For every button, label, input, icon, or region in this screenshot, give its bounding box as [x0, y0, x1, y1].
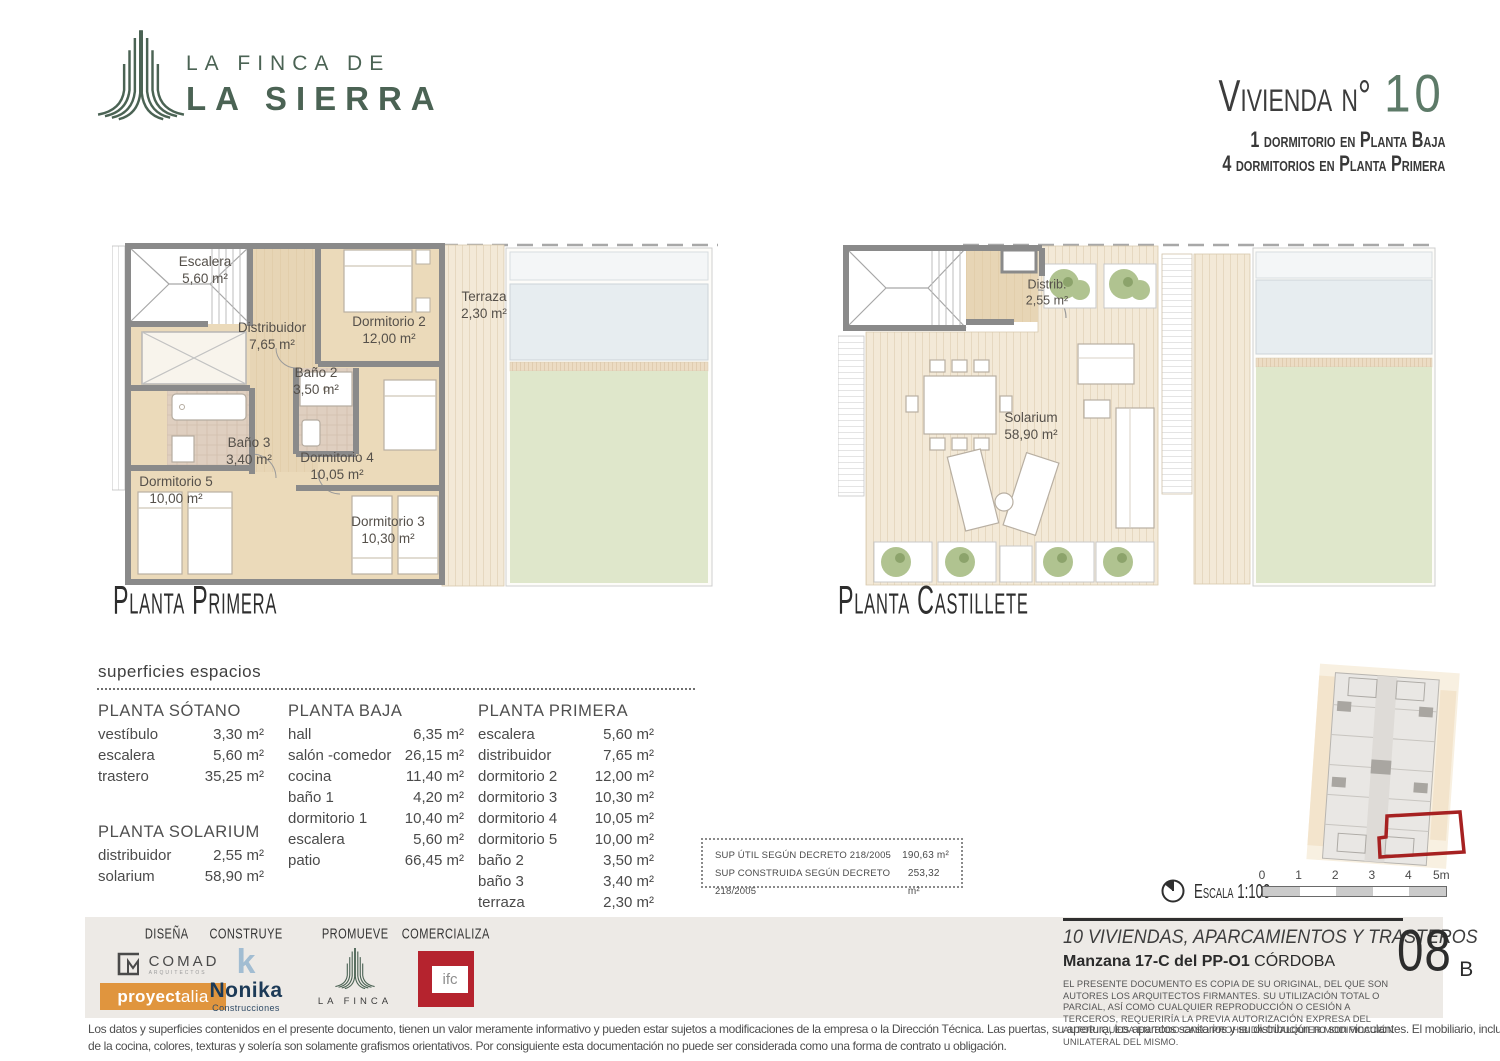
room-label-dormitorio-4: Dormitorio 410,05 m²	[300, 450, 374, 484]
disclaimer-line-2: de la cocina, colores, texturas y solerí…	[88, 1039, 1007, 1053]
scale-ticks: 0 1 2 3 4 5m	[1262, 868, 1445, 882]
surfaces-title: PLANTA PRIMERA	[478, 700, 654, 722]
surface-row: baño 14,20 m²	[288, 787, 464, 808]
room-label-distrib: Distrib.2,55 m²	[1026, 277, 1068, 308]
surface-row: baño 23,50 m²	[478, 850, 654, 871]
brand-tree-icon	[95, 26, 187, 122]
surface-row: escalera5,60 m²	[288, 829, 464, 850]
brand-wordmark: LA FINCA DE LA SIERRA	[186, 52, 444, 118]
unit-title-block: Vivienda n°10 1 dormitorio en Planta Baj…	[1183, 66, 1445, 176]
room-label-solarium: Solarium58,90 m²	[1004, 410, 1057, 444]
surfaces-col-baja: PLANTA BAJA hall6,35 m² salón -comedor26…	[288, 700, 464, 871]
unit-number: 10	[1385, 63, 1445, 124]
comad-logo-icon	[115, 951, 143, 977]
surface-row: baño 33,40 m²	[478, 871, 654, 892]
surface-summary-box: SUP ÚTIL SEGÚN DECRETO 218/2005190,63 m²…	[701, 838, 963, 888]
room-label-terraza: Terraza2,30 m²	[461, 289, 507, 323]
brand-line2: LA SIERRA	[186, 80, 444, 118]
surface-row: distribuidor2,55 m²	[98, 845, 264, 866]
surfaces-title: PLANTA BAJA	[288, 700, 464, 722]
nonika-wordmark: Nonika	[188, 979, 304, 1003]
plan-sheet: { "brand": { "logo_line1": "LA FINCA DE"…	[0, 0, 1500, 1061]
surfaces-col-primera: PLANTA PRIMERA escalera5,60 m² distribui…	[478, 700, 654, 913]
surface-row: solarium58,90 m²	[98, 866, 264, 887]
nonika-subtitle: Construcciones	[188, 1003, 304, 1013]
sup-util-row: SUP ÚTIL SEGÚN DECRETO 218/2005190,63 m²	[715, 847, 949, 865]
north-compass-icon	[1160, 878, 1186, 904]
sup-construida-row: SUP CONSTRUIDA SEGÚN DECRETO 218/2005253…	[715, 865, 949, 901]
surfaces-title: PLANTA SOLARIUM	[98, 821, 264, 843]
floorplan-planta-castillete	[838, 240, 1443, 592]
surfaces-heading: superficies espacios	[98, 662, 261, 682]
scale-bar	[1262, 886, 1447, 897]
room-label-bano-3: Baño 33,40 m²	[226, 435, 272, 469]
unit-subtitle-2: 4 dormitorios en Planta Primera	[1222, 152, 1445, 177]
surfaces-title: PLANTA SÓTANO	[98, 700, 264, 722]
caption-planta-castillete: Planta Castillete	[838, 588, 1092, 624]
role-construye: CONSTRUYE k Nonika Construcciones	[188, 925, 304, 1013]
surface-row: trastero35,25 m²	[98, 766, 264, 787]
surface-row: dormitorio 212,00 m²	[478, 766, 654, 787]
room-label-bano-2: Baño 23,50 m²	[293, 365, 339, 399]
surface-row: escalera5,60 m²	[478, 724, 654, 745]
lafinca-tree-icon	[334, 947, 376, 989]
room-label-dormitorio-3: Dormitorio 310,30 m²	[351, 514, 425, 548]
role-comercializa: COMERCIALIZA ifc	[388, 925, 504, 1007]
unit-subtitle-1: 1 dormitorio en Planta Baja	[1250, 128, 1445, 153]
room-label-escalera: Escalera5,60 m²	[179, 254, 232, 288]
project-legal-text: EL PRESENTE DOCUMENTO ES COPIA DE SU ORI…	[1063, 979, 1397, 1049]
surface-row: salón -comedor26,15 m²	[288, 745, 464, 766]
surface-row: terraza2,30 m²	[478, 892, 654, 913]
site-location-minimap	[1283, 660, 1478, 875]
surface-row: patio66,45 m²	[288, 850, 464, 871]
surface-row: cocina11,40 m²	[288, 766, 464, 787]
surface-row: dormitorio 410,05 m²	[478, 808, 654, 829]
surfaces-divider	[97, 688, 695, 690]
surface-row: dormitorio 510,00 m²	[478, 829, 654, 850]
surface-row: vestíbulo3,30 m²	[98, 724, 264, 745]
nonika-k-icon: k	[188, 947, 304, 977]
brand-line1: LA FINCA DE	[186, 52, 444, 76]
ifc-wordmark: ifc	[432, 966, 468, 993]
surface-row: distribuidor7,65 m²	[478, 745, 654, 766]
caption-planta-primera: Planta Primera	[113, 588, 332, 624]
unit-title-label: Vivienda n°	[1219, 72, 1372, 122]
project-subtitle: Manzana 17-C del PP-O1 CÓRDOBA	[1063, 953, 1445, 971]
room-label-distribuidor: Distribuidor7,65 m²	[238, 320, 306, 354]
room-label-dormitorio-2: Dormitorio 212,00 m²	[352, 314, 426, 348]
surfaces-col-sotano-solarium: PLANTA SÓTANO vestíbulo3,30 m² escalera5…	[98, 700, 264, 887]
surface-row: hall6,35 m²	[288, 724, 464, 745]
surface-row: dormitorio 310,30 m²	[478, 787, 654, 808]
surface-row: escalera5,60 m²	[98, 745, 264, 766]
room-label-dormitorio-5: Dormitorio 510,00 m²	[139, 474, 213, 508]
sheet-number: 08B	[1397, 916, 1473, 982]
surface-row: dormitorio 110,40 m²	[288, 808, 464, 829]
ifc-logo: ifc	[418, 951, 474, 1007]
disclaimer-line-1: Los datos y superficies contenidos en el…	[88, 1022, 1500, 1036]
